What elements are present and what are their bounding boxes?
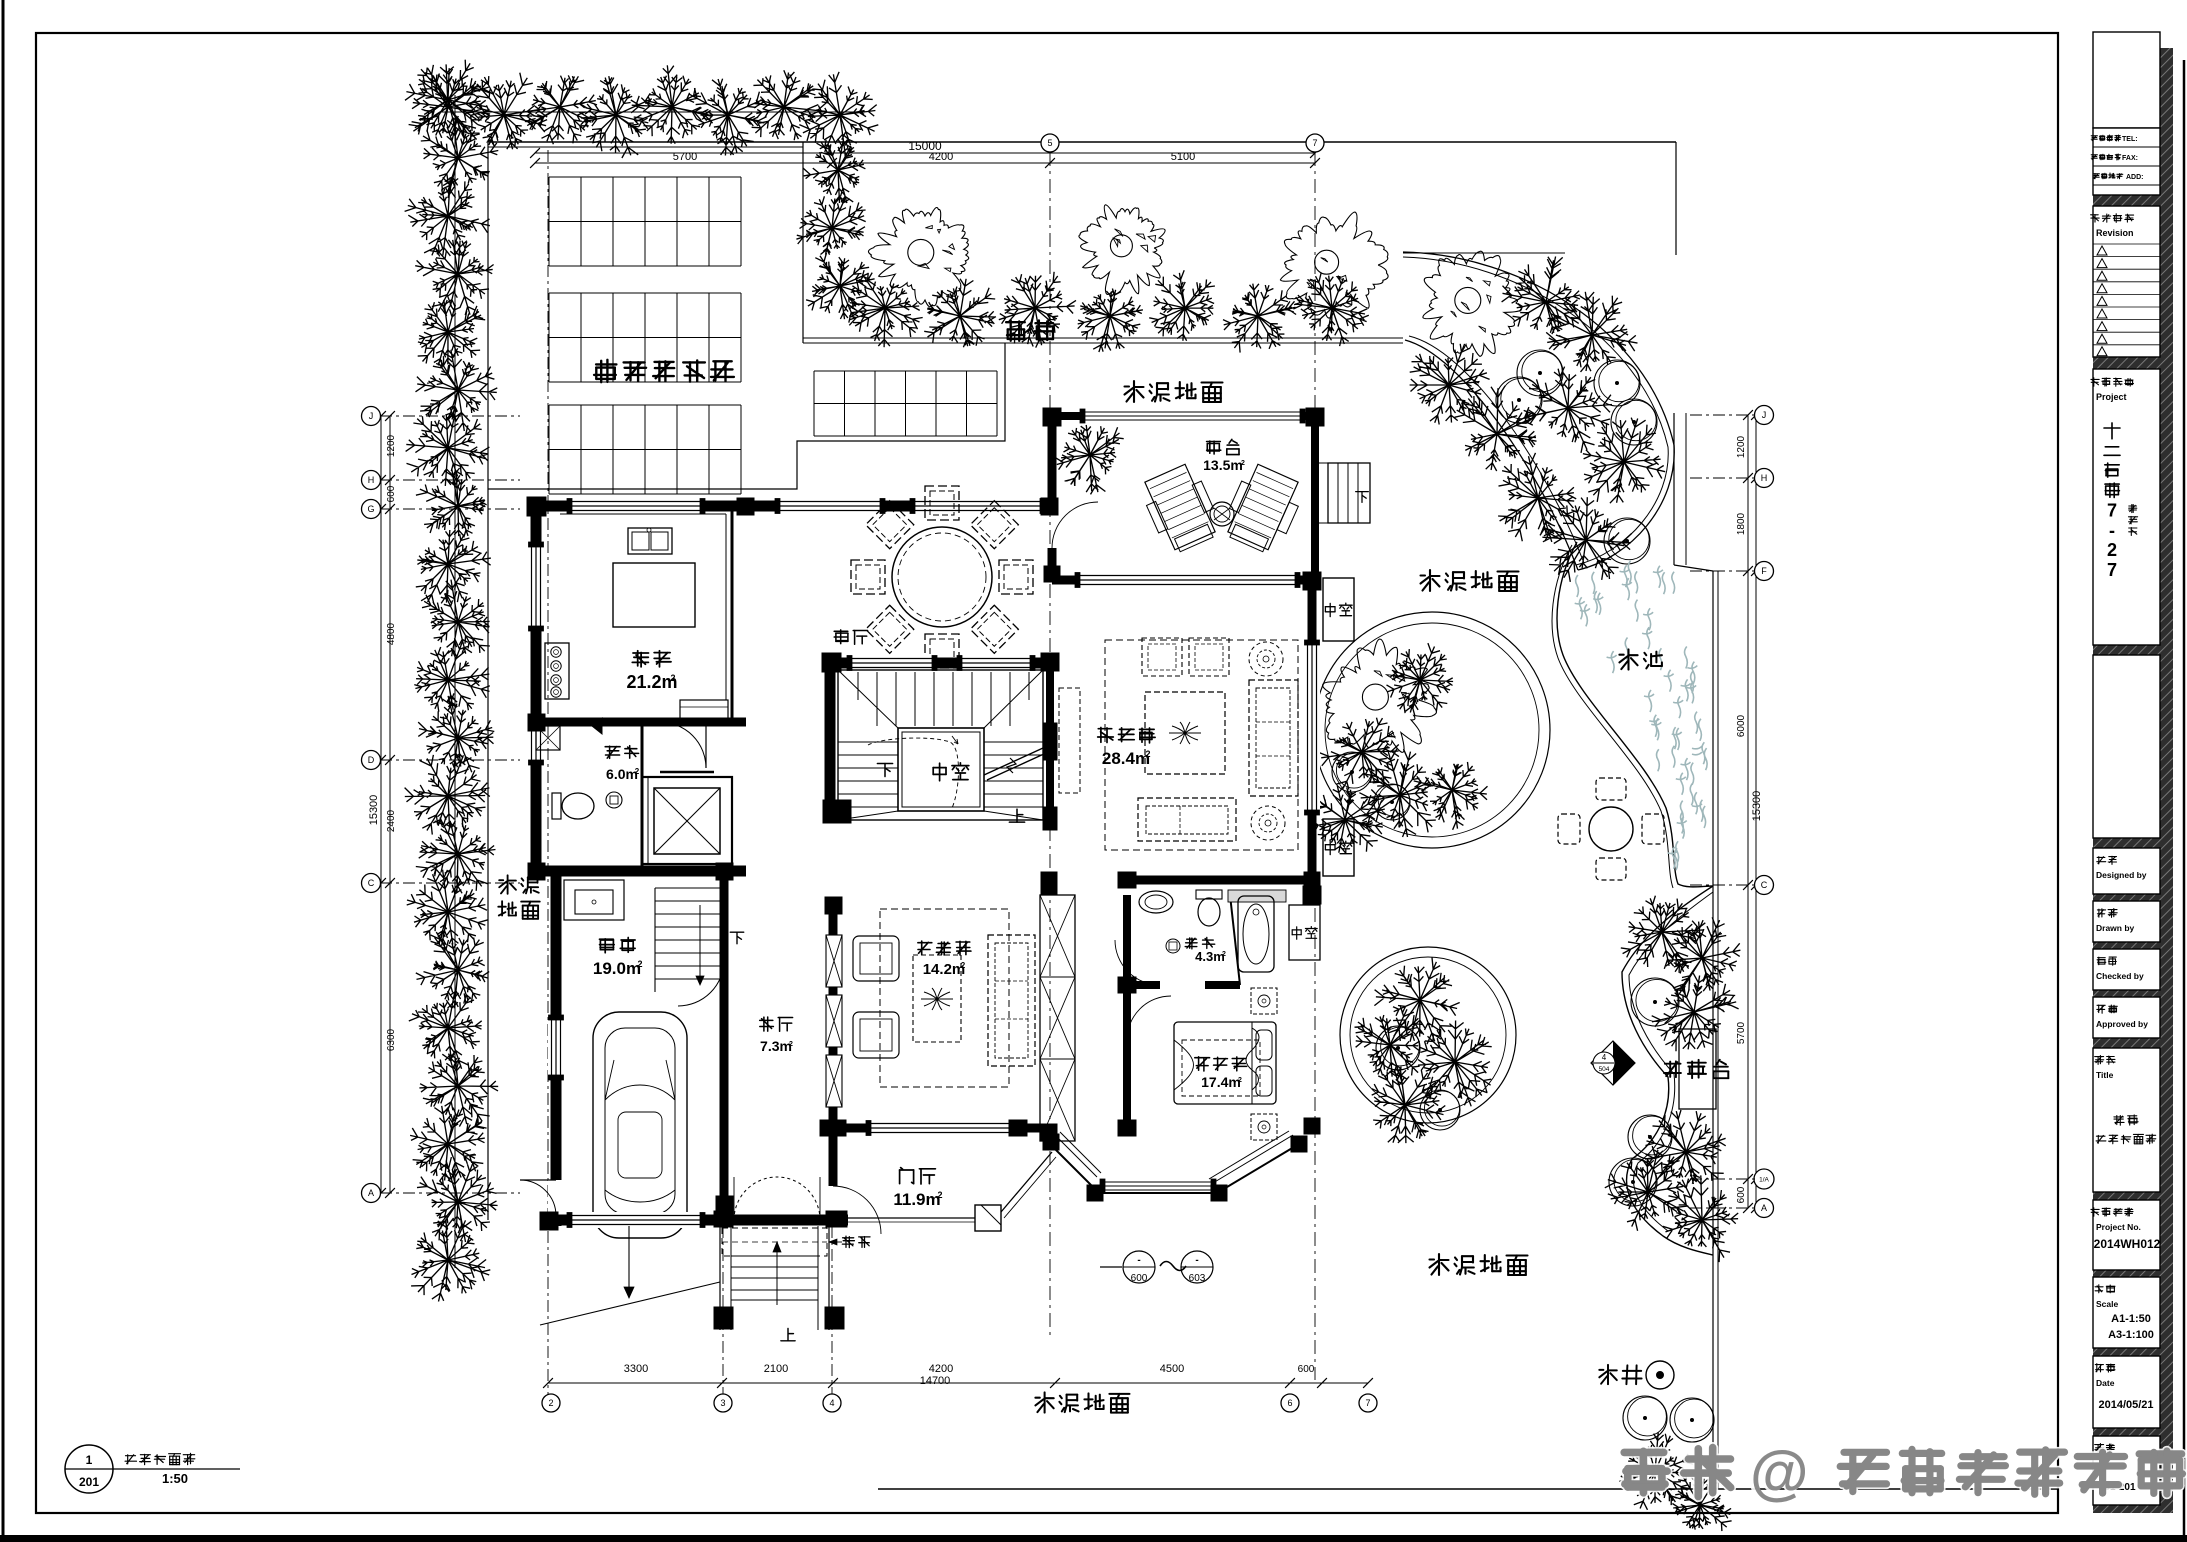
svg-text:13.5m: 13.5m <box>1203 457 1243 473</box>
svg-text:J: J <box>1762 410 1767 420</box>
svg-text:7: 7 <box>2107 560 2117 580</box>
svg-text:H: H <box>368 475 375 485</box>
svg-text:7: 7 <box>2107 501 2117 521</box>
svg-text:4800: 4800 <box>386 622 397 645</box>
svg-text:ADD:: ADD: <box>2126 174 2144 181</box>
svg-text:11.9m: 11.9m <box>893 1190 940 1209</box>
svg-text:603: 603 <box>1189 1273 1206 1284</box>
svg-text:504: 504 <box>1599 1066 1610 1073</box>
svg-text:15300: 15300 <box>368 795 380 826</box>
svg-text:1200: 1200 <box>1736 435 1747 458</box>
svg-text:-: - <box>1195 1255 1198 1266</box>
svg-text:5: 5 <box>1047 138 1052 148</box>
svg-text:Scale: Scale <box>2096 1299 2118 1309</box>
svg-text:2: 2 <box>635 767 640 776</box>
svg-text:600: 600 <box>1736 1186 1747 1203</box>
svg-text:6: 6 <box>1287 1398 1292 1408</box>
svg-text:201: 201 <box>79 1475 99 1489</box>
svg-text:7.3m: 7.3m <box>760 1038 792 1054</box>
svg-text:FAX:: FAX: <box>2122 155 2138 162</box>
svg-text:2: 2 <box>789 1041 793 1048</box>
svg-text:2: 2 <box>1222 951 1226 958</box>
svg-text:4200: 4200 <box>929 1363 953 1375</box>
svg-text:Drawn by: Drawn by <box>2096 923 2135 933</box>
svg-text:14.2m: 14.2m <box>923 961 966 978</box>
svg-text:Approved by: Approved by <box>2096 1019 2148 1029</box>
svg-text:17.4m: 17.4m <box>1201 1074 1241 1090</box>
svg-text:6000: 6000 <box>1736 714 1747 737</box>
svg-text:28.4m: 28.4m <box>1102 749 1150 768</box>
svg-text:1/A: 1/A <box>1759 1176 1769 1183</box>
svg-text:2014WH012: 2014WH012 <box>2094 1237 2161 1251</box>
svg-text:600: 600 <box>1298 1364 1315 1375</box>
svg-text:H: H <box>1761 473 1768 483</box>
svg-text:2: 2 <box>670 673 675 683</box>
svg-text:2: 2 <box>2107 540 2117 560</box>
svg-text:5700: 5700 <box>1736 1021 1747 1044</box>
svg-text:2: 2 <box>937 1190 942 1200</box>
svg-text:1: 1 <box>86 1453 93 1467</box>
svg-text:6300: 6300 <box>386 1028 397 1051</box>
svg-text:Date: Date <box>2096 1378 2115 1388</box>
svg-text:6.0m: 6.0m <box>606 766 638 782</box>
svg-text:2: 2 <box>548 1398 553 1408</box>
svg-text:TEL:: TEL: <box>2122 136 2138 143</box>
svg-text:2: 2 <box>1238 1077 1242 1084</box>
svg-text:G: G <box>367 504 374 514</box>
svg-text:3: 3 <box>720 1398 725 1408</box>
svg-text:3300: 3300 <box>624 1363 648 1375</box>
svg-text:Title: Title <box>2096 1070 2114 1080</box>
svg-text:1800: 1800 <box>1736 512 1747 535</box>
svg-text:600: 600 <box>1131 1273 1148 1284</box>
svg-text:19.0m: 19.0m <box>593 959 641 978</box>
svg-text:@: @ <box>1750 1439 1809 1506</box>
svg-text:A: A <box>368 1188 374 1198</box>
svg-text:600: 600 <box>386 485 397 502</box>
svg-text:2: 2 <box>1145 749 1150 759</box>
svg-text:-: - <box>1137 1255 1140 1266</box>
svg-text:C: C <box>368 878 375 888</box>
svg-text:F: F <box>1761 566 1767 576</box>
svg-text:Revision: Revision <box>2096 228 2134 238</box>
svg-text:2014/05/21: 2014/05/21 <box>2098 1399 2153 1411</box>
svg-text:15300: 15300 <box>1751 791 1763 822</box>
svg-text:A: A <box>1761 1203 1767 1213</box>
svg-text:7: 7 <box>1365 1398 1370 1408</box>
svg-text:Project: Project <box>2096 392 2127 402</box>
svg-text:1:50: 1:50 <box>162 1471 188 1486</box>
svg-text:A3-1:100: A3-1:100 <box>2108 1329 2154 1341</box>
svg-text:2: 2 <box>1241 460 1245 467</box>
svg-text:2400: 2400 <box>386 809 397 832</box>
svg-text:7: 7 <box>1312 138 1317 148</box>
svg-text:2: 2 <box>637 959 642 969</box>
svg-text:A1-1:50: A1-1:50 <box>2111 1313 2151 1325</box>
svg-text:5700: 5700 <box>673 151 697 163</box>
svg-text:C: C <box>1761 880 1768 890</box>
svg-text:Designed by: Designed by <box>2096 870 2147 880</box>
svg-text:14700: 14700 <box>920 1375 951 1387</box>
svg-text:4: 4 <box>829 1398 834 1408</box>
svg-text:2: 2 <box>961 961 966 970</box>
svg-text:4.3m: 4.3m <box>1195 949 1225 964</box>
svg-text:Checked by: Checked by <box>2096 971 2144 981</box>
svg-text:Project No.: Project No. <box>2096 1222 2141 1232</box>
svg-text:J: J <box>369 411 374 421</box>
svg-text:D: D <box>368 755 375 765</box>
svg-text:1200: 1200 <box>386 434 397 457</box>
svg-text:4500: 4500 <box>1160 1363 1184 1375</box>
svg-text:-: - <box>2109 521 2115 541</box>
svg-text:4: 4 <box>1602 1053 1607 1062</box>
svg-text:5100: 5100 <box>1171 151 1195 163</box>
svg-text:4200: 4200 <box>929 151 953 163</box>
svg-text:2100: 2100 <box>764 1363 788 1375</box>
